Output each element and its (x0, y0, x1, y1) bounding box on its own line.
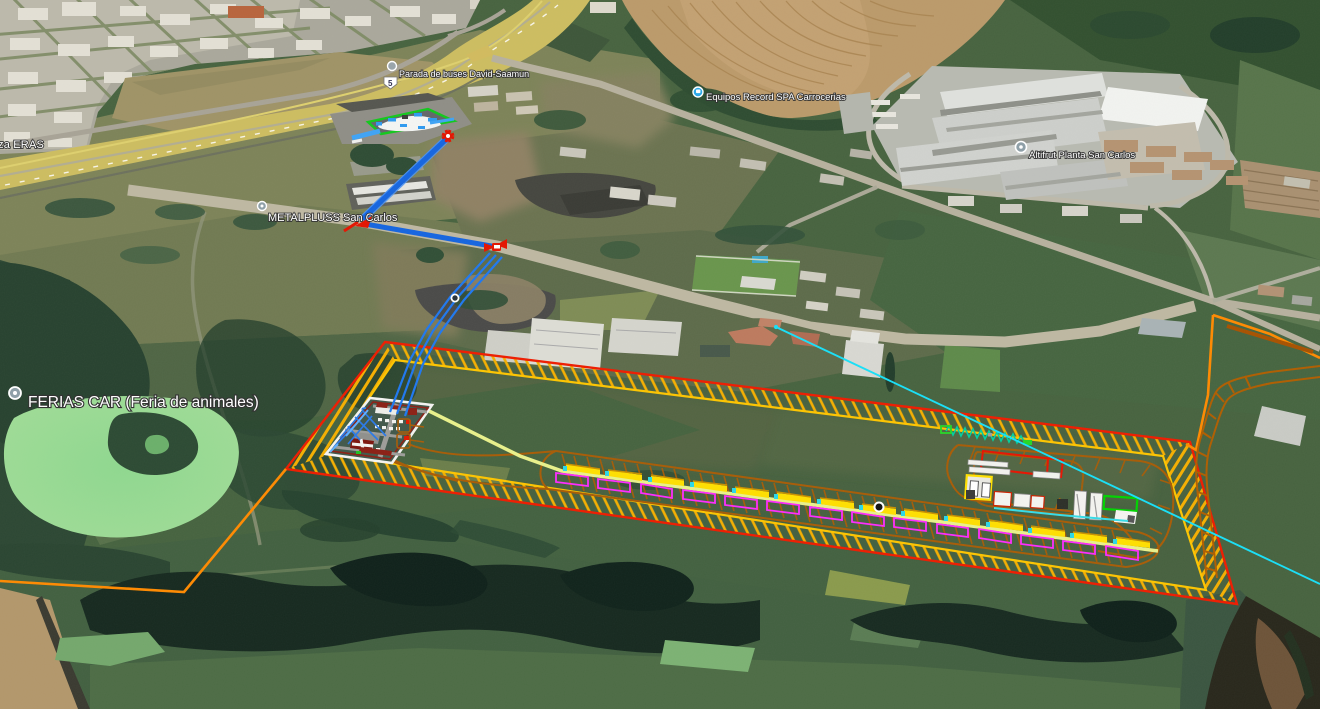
svg-text:Parada de buses David-Saamun: Parada de buses David-Saamun (399, 69, 529, 79)
svg-text:Altifrut Planta San Carlos: Altifrut Planta San Carlos (1029, 150, 1135, 161)
svg-text:za ERAS: za ERAS (0, 139, 44, 151)
svg-text:5: 5 (388, 79, 393, 88)
svg-text:FERIAS CAR (Feria de animales): FERIAS CAR (Feria de animales) (28, 394, 259, 411)
svg-text:Equipos Record SPA Carrocerias: Equipos Record SPA Carrocerias (706, 92, 846, 103)
svg-text:METALPLUSS San Carlos: METALPLUSS San Carlos (268, 212, 398, 224)
